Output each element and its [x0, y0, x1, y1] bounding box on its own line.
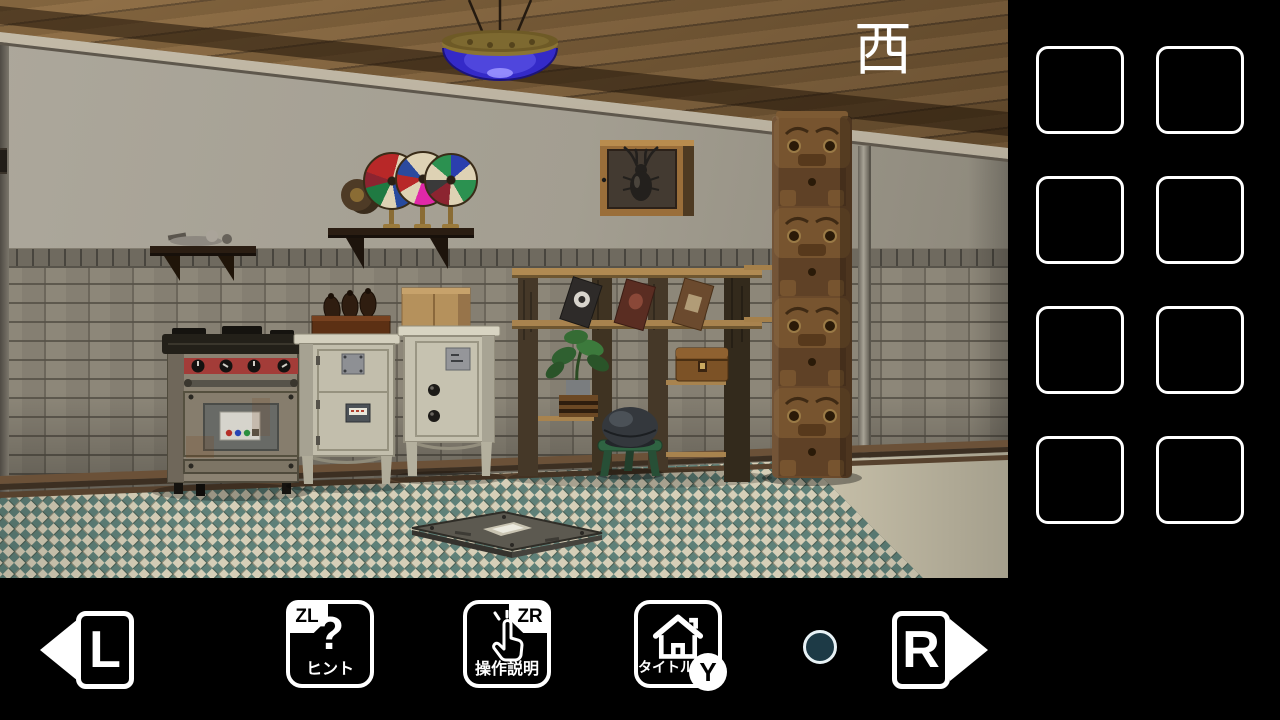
cardboard-box[interactable]: [402, 288, 470, 328]
right-arrow-icon: [950, 619, 988, 681]
page-indicator-dot: [803, 630, 837, 664]
room-scene: 西: [0, 0, 1008, 578]
hint-label: ヒント: [290, 655, 370, 679]
phonograph-horn-right[interactable]: [424, 153, 478, 207]
r-key-label: R: [892, 611, 950, 689]
floor-hatch[interactable]: [412, 512, 602, 558]
how-to-play-label: 操作説明: [467, 655, 547, 679]
control-bar: L ZL ? ヒント ZR 操作説明: [0, 578, 1280, 720]
pendant-lamp[interactable]: [442, 0, 558, 80]
inventory-slot[interactable]: [1036, 176, 1124, 264]
inventory-slot[interactable]: [1036, 46, 1124, 134]
wooden-chest[interactable]: [676, 348, 728, 381]
inventory-slot[interactable]: [1156, 46, 1244, 134]
small-wall-shelf[interactable]: [150, 230, 256, 281]
hint-button[interactable]: ZL ? ヒント: [286, 600, 374, 688]
left-arrow-icon: [40, 619, 78, 681]
inventory-slot[interactable]: [1156, 176, 1244, 264]
helmet[interactable]: [602, 407, 658, 448]
stove[interactable]: [152, 326, 312, 501]
l-key-label: L: [76, 611, 134, 689]
turn-left-button[interactable]: L: [40, 611, 180, 689]
question-mark-icon: ?: [290, 606, 370, 660]
wall-rail: [0, 440, 1008, 498]
cabinet-right[interactable]: [390, 288, 506, 485]
totem-pole[interactable]: [762, 111, 862, 486]
direction-label-west: 西: [848, 2, 918, 86]
wooden-tray-bells[interactable]: [312, 288, 390, 335]
beetle-display-box[interactable]: [600, 140, 694, 216]
cabinet-left[interactable]: [286, 288, 406, 493]
inventory-slot[interactable]: [1036, 306, 1124, 394]
inventory-slot[interactable]: [1036, 436, 1124, 524]
inventory-slot[interactable]: [1156, 306, 1244, 394]
how-to-play-button[interactable]: ZR 操作説明: [463, 600, 551, 688]
to-title-button[interactable]: タイトルへ Y: [634, 600, 722, 688]
inventory-slot[interactable]: [1156, 436, 1244, 524]
game-screen: 西 L ZL ? ヒント ZR: [0, 0, 1280, 720]
turn-right-button[interactable]: R: [892, 611, 1032, 689]
y-key-badge: Y: [689, 653, 727, 691]
